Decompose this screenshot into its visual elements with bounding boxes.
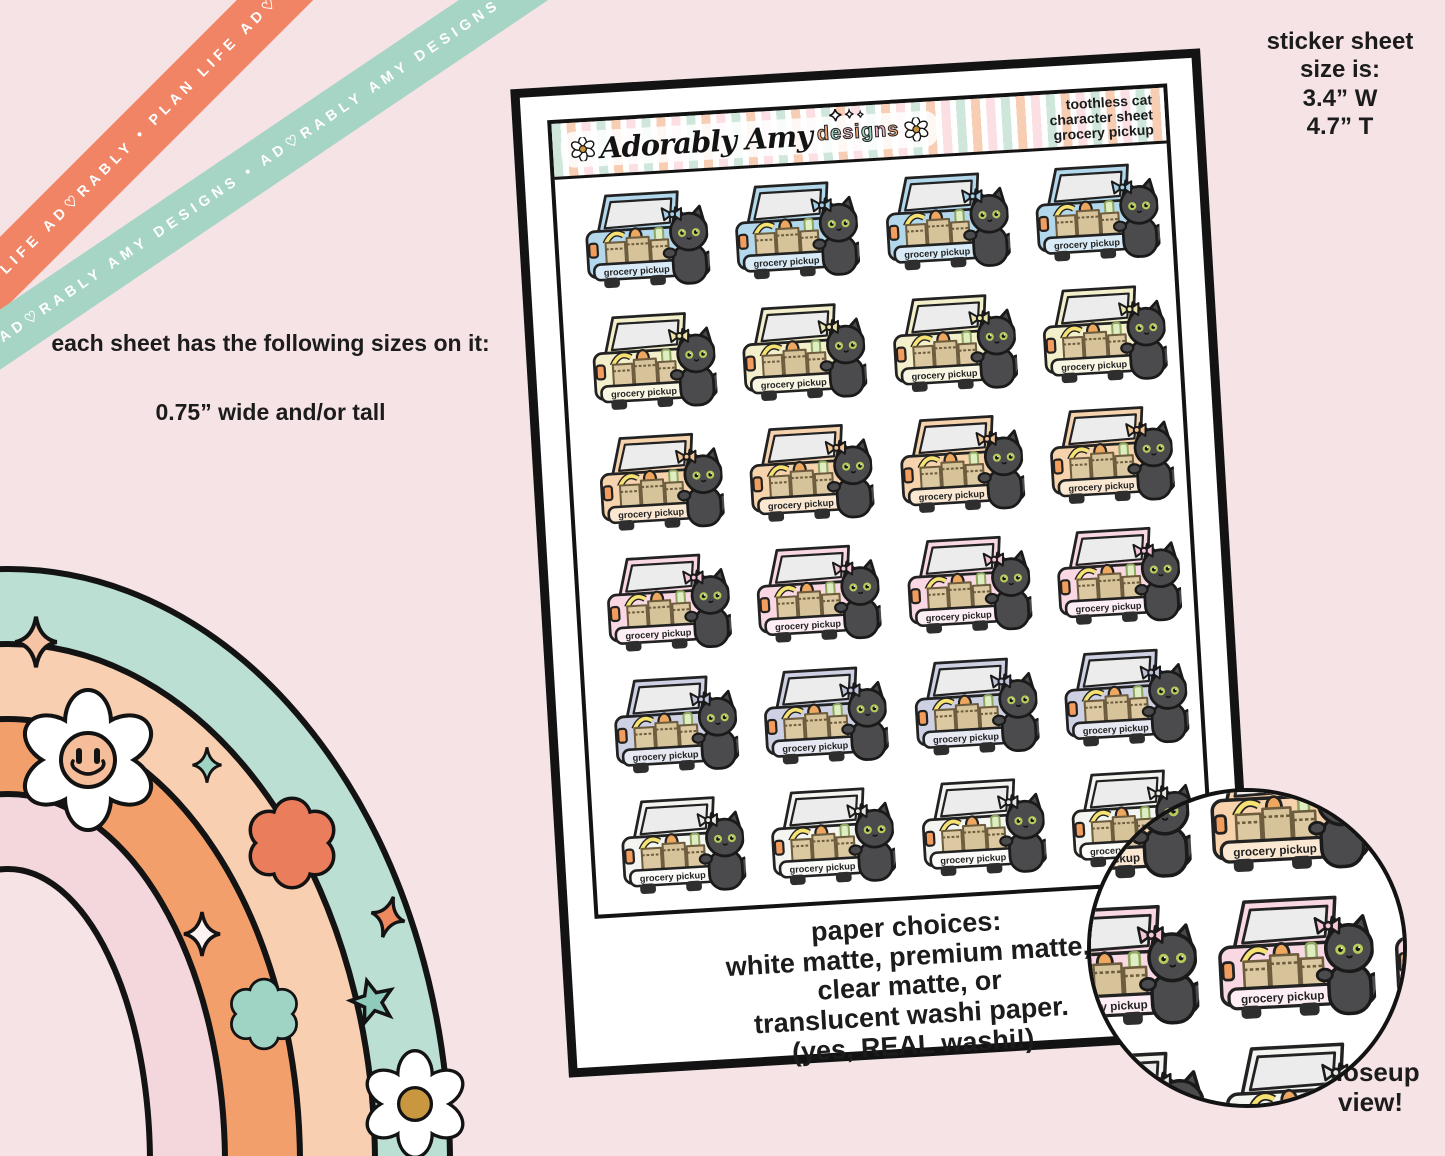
sticker-grocery-pickup-lavender: grocery pickup bbox=[890, 641, 1047, 771]
coral-flower bbox=[252, 800, 332, 886]
sheet-sizes-note: each sheet has the following sizes on it… bbox=[18, 330, 523, 426]
sticker-grocery-pickup-blue: grocery pickup bbox=[1011, 148, 1168, 278]
brand-sub-name: designs bbox=[816, 118, 900, 146]
sticker-grocery-pickup-white: grocery pickup bbox=[897, 762, 1054, 892]
closeup-sticker-grid: grocery pickup bbox=[1087, 788, 1407, 1108]
closeup-view-circle: grocery pickup bbox=[1087, 788, 1407, 1108]
sticker-grocery-pickup-lavender: grocery pickup bbox=[590, 659, 747, 789]
sticker-grocery-pickup-peach: grocery pickup bbox=[875, 399, 1032, 529]
closeup-sticker-pink: grocery pickup bbox=[1087, 889, 1202, 1045]
closeup-sticker-pink: grocery pickup bbox=[1194, 879, 1378, 1035]
sheet-title: toothless cat character sheet grocery pi… bbox=[1048, 92, 1158, 144]
size-note-line: 3.4” W bbox=[1240, 85, 1440, 113]
brand-sub-letter: d bbox=[816, 122, 831, 145]
brand-logo: Adorably Amy designs bbox=[560, 110, 940, 168]
daisy-icon bbox=[904, 116, 929, 141]
sticker-grocery-pickup-white: grocery pickup bbox=[747, 771, 904, 901]
sheet-sizes-note-line2: 0.75” wide and/or tall bbox=[18, 399, 523, 426]
sticker-grocery-pickup-lavender: grocery pickup bbox=[1040, 632, 1197, 762]
page: { "page": { "background": "#f6e3e5" }, "… bbox=[0, 0, 1445, 1156]
size-note-line: sticker sheet bbox=[1240, 28, 1440, 56]
brand-sub-letter: s bbox=[887, 118, 900, 141]
sticker-grocery-pickup-peach: grocery pickup bbox=[1025, 390, 1182, 520]
sticker-grocery-pickup-lavender: grocery pickup bbox=[740, 650, 897, 780]
mint-flower bbox=[233, 980, 295, 1047]
sticker-grocery-pickup-yellow: grocery pickup bbox=[868, 278, 1025, 408]
closeup-sticker-white: grocery pickup bbox=[1379, 1017, 1407, 1108]
closeup-sticker-white: grocery pickup bbox=[1202, 1026, 1386, 1108]
brand-sub-letter: g bbox=[860, 120, 875, 143]
sticker-sheet-size-note: sticker sheet size is: 3.4” W 4.7” T bbox=[1240, 28, 1440, 141]
sticker-grocery-pickup-pink: grocery pickup bbox=[882, 520, 1039, 650]
sticker-grocery-pickup-pink: grocery pickup bbox=[732, 529, 889, 659]
size-note-line: size is: bbox=[1240, 56, 1440, 84]
sparkles-icon bbox=[823, 106, 868, 125]
sticker-grocery-pickup-blue: grocery pickup bbox=[711, 166, 868, 296]
size-note-line: 4.7” T bbox=[1240, 113, 1440, 141]
sticker-grocery-pickup-blue: grocery pickup bbox=[561, 175, 718, 305]
sticker-grocery-pickup-pink: grocery pickup bbox=[583, 538, 740, 668]
closeup-sticker-white: grocery pickup bbox=[1087, 1036, 1210, 1108]
brand-script-name: Adorably Amy bbox=[599, 118, 813, 165]
sticker-grocery-pickup-yellow: grocery pickup bbox=[718, 287, 875, 417]
sticker-grocery-pickup-peach: grocery pickup bbox=[575, 417, 732, 547]
sticker-grocery-pickup-peach: grocery pickup bbox=[725, 408, 882, 538]
sheet-sizes-note-line1: each sheet has the following sizes on it… bbox=[18, 330, 523, 357]
closeup-sticker-peach: grocery pickup bbox=[1187, 788, 1371, 889]
sticker-grocery-pickup-blue: grocery pickup bbox=[861, 157, 1018, 287]
sticker-grocery-pickup-yellow: grocery pickup bbox=[568, 296, 725, 426]
brand-sub-letter: n bbox=[873, 119, 888, 142]
closeup-sticker-peach: grocery pickup bbox=[1087, 788, 1194, 898]
sheet-title-line: grocery pickup bbox=[1050, 122, 1154, 143]
closeup-sticker-peach: grocery pickup bbox=[1363, 788, 1407, 879]
daisy-icon bbox=[570, 136, 595, 161]
sticker-grocery-pickup-white: grocery pickup bbox=[597, 780, 754, 910]
rainbow-decoration bbox=[0, 552, 470, 1156]
sticker-grocery-pickup-pink: grocery pickup bbox=[1032, 511, 1189, 641]
sticker-grocery-pickup-yellow: grocery pickup bbox=[1018, 269, 1175, 399]
